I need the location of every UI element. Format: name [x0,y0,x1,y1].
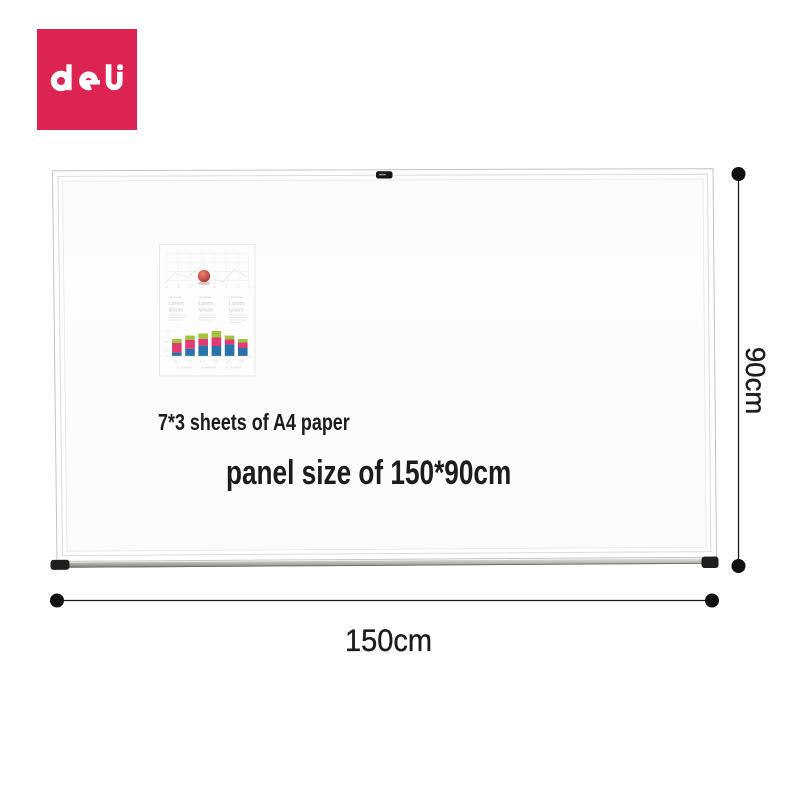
svg-text:Lorem: Lorem [229,301,245,307]
svg-text:Lorem: Lorem [199,301,215,307]
svg-text:02: 02 [187,359,192,364]
svg-text:Ipsum: Ipsum [169,308,184,314]
svg-text:Ipsum: Ipsum [199,308,214,314]
svg-text:Lorem: Lorem [169,301,185,307]
svg-text:Ipsum: Ipsum [229,308,244,314]
svg-text:04: 04 [213,359,218,364]
svg-text:05: 05 [226,359,231,364]
svg-text:03: 03 [200,359,205,364]
svg-text:06: 06 [239,359,244,364]
svg-text:01: 01 [174,359,179,364]
